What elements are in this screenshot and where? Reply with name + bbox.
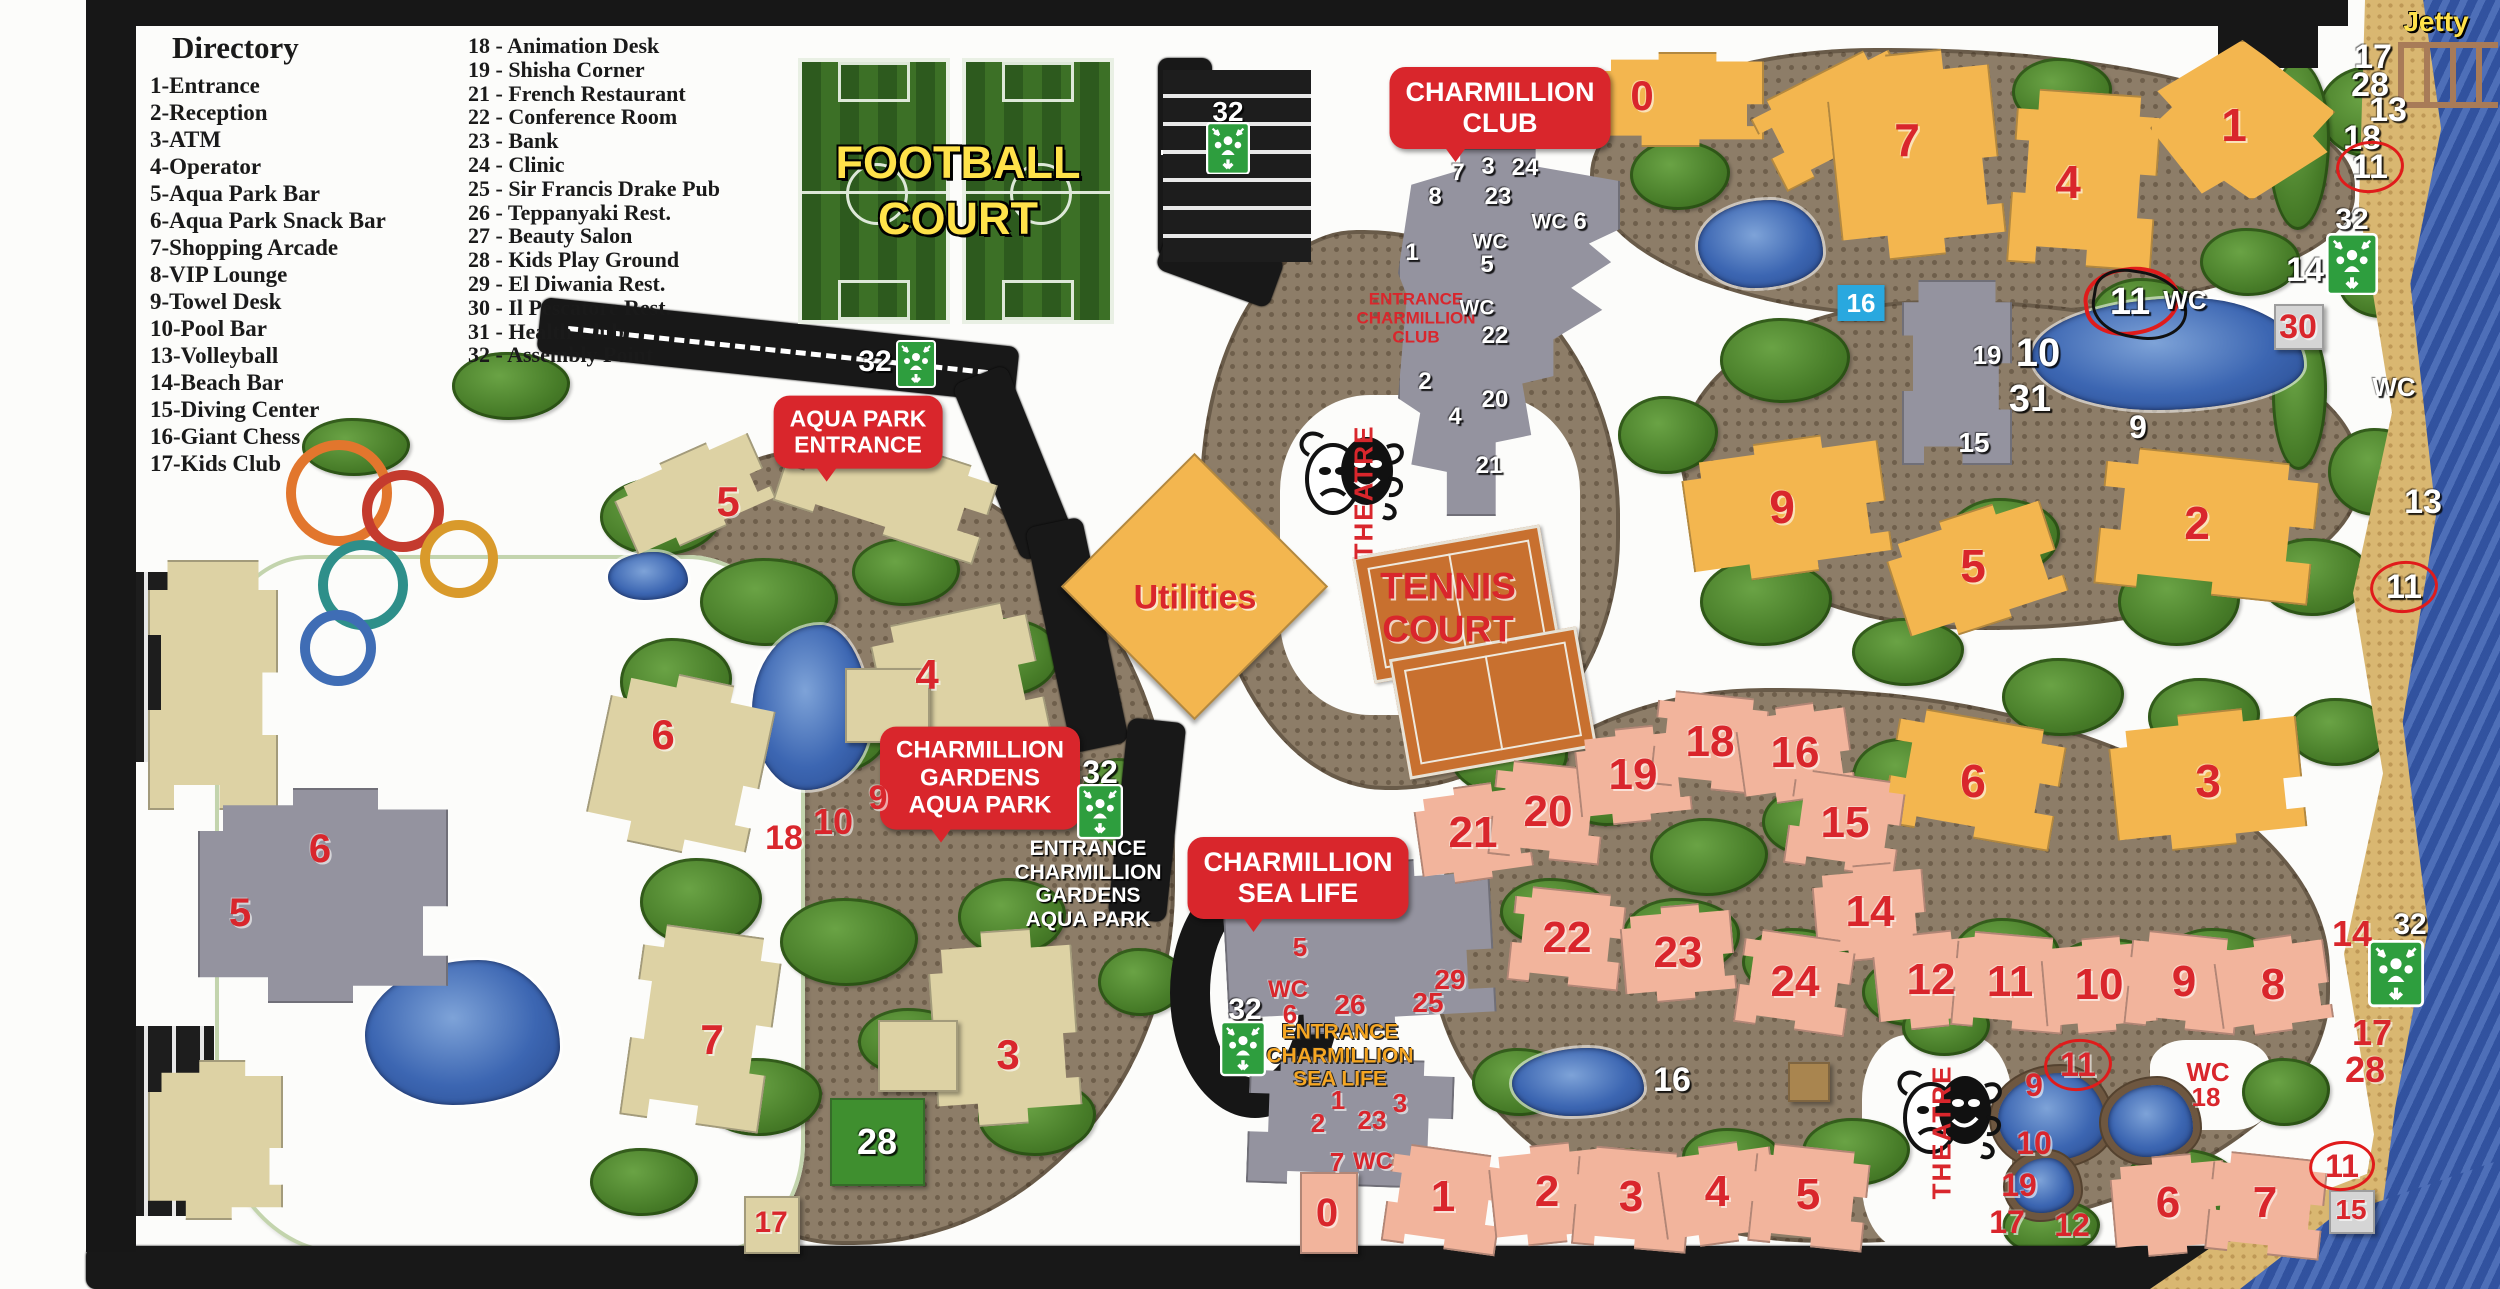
directory-item: 2-Reception: [150, 99, 468, 126]
wc-label: WC: [1353, 1150, 1393, 1174]
map-number-9: 9: [869, 781, 888, 815]
map-number-9: 9: [2172, 960, 2196, 1004]
jetty-label: Jetty: [2403, 6, 2468, 38]
utilities-label: Utilities: [1134, 579, 1257, 618]
directory-item: 8-VIP Lounge: [150, 261, 468, 288]
map-number-12: 12: [1907, 958, 1956, 1002]
map-number-1: 1: [1405, 241, 1418, 265]
map-number-6: 6: [1573, 210, 1586, 234]
map-number-15: 15: [2335, 1196, 2366, 1224]
map-number-19: 19: [1609, 753, 1658, 797]
map-number-18: 18: [1686, 720, 1735, 764]
map-number-5: 5: [229, 893, 251, 933]
map-number-3: 3: [1481, 155, 1494, 179]
map-number-4: 4: [2055, 159, 2081, 205]
building: [2006, 87, 2163, 272]
map-number-19: 19: [1973, 342, 2002, 368]
directory-item: 31 - Health Club: [468, 320, 830, 344]
football-court-label: FOOTBALL COURT: [836, 135, 1081, 248]
swimming-pool: [608, 552, 688, 600]
map-number-11: 11: [2110, 283, 2150, 321]
map-number-9: 9: [2129, 411, 2147, 443]
map-number-21: 21: [1449, 811, 1498, 855]
map-number-10: 10: [813, 804, 853, 840]
map-number-6: 6: [309, 829, 331, 869]
directory-item: 30 - Il Pescatore Rest.: [468, 296, 830, 320]
directory-item: 25 - Sir Francis Drake Pub: [468, 177, 830, 201]
penalty-box: [1002, 280, 1074, 320]
directory-item: 21 - French Restaurant: [468, 82, 830, 106]
directory-item: 16-Giant Chess: [150, 423, 468, 450]
map-number-16: 16: [1771, 731, 1820, 775]
directory-item: 17-Kids Club: [150, 450, 468, 477]
map-number-6: 6: [1960, 758, 1986, 804]
penalty-box: [838, 62, 910, 102]
map-number-2: 2: [1418, 370, 1431, 394]
map-number-17: 17: [754, 1208, 787, 1238]
map-number-4: 4: [1705, 1170, 1729, 1214]
directory-item: 7-Shopping Arcade: [150, 234, 468, 261]
map-number-0: 0: [1316, 1193, 1338, 1233]
badge-charmillion-club: CHARMILLION CLUB: [1390, 67, 1611, 149]
map-number-23: 23: [1358, 1107, 1387, 1133]
map-number-23: 23: [1485, 185, 1512, 209]
map-number-1: 1: [2221, 102, 2247, 148]
building: [1902, 280, 2012, 465]
assembly-point-icon: [2326, 233, 2378, 295]
directory-item: 29 - El Diwania Rest.: [468, 272, 830, 296]
directory-item: 28 - Kids Play Ground: [468, 248, 830, 272]
building: [1788, 1062, 1830, 1102]
map-number-8: 8: [2261, 963, 2285, 1007]
theatre-label: THEATRE: [1349, 425, 1380, 560]
directory-item: 9-Towel Desk: [150, 288, 468, 315]
map-number-11: 11: [2386, 570, 2422, 604]
map-border: [86, 0, 136, 1252]
directory-item: 27 - Beauty Salon: [468, 224, 830, 248]
map-border: [86, 0, 2348, 26]
map-number-1: 1: [1331, 1087, 1345, 1113]
map-number-6: 6: [2156, 1181, 2180, 1225]
map-number-11: 11: [1987, 960, 2034, 1004]
entrance-label-gardens: ENTRANCE CHARMILLION GARDENS AQUA PARK: [1015, 837, 1162, 931]
assembly-point-icon: [1220, 1021, 1266, 1076]
map-number-19: 19: [2001, 1169, 2037, 1201]
map-number-30: 30: [2279, 310, 2317, 344]
map-number-23: 23: [1654, 931, 1703, 975]
map-number-7: 7: [2253, 1181, 2277, 1225]
directory-item: 23 - Bank: [468, 129, 830, 153]
map-number-10: 10: [2075, 963, 2124, 1007]
assembly-point-icon: [896, 340, 936, 388]
directory-item: 13-Volleyball: [150, 342, 468, 369]
map-number-8: 8: [1428, 185, 1441, 209]
map-number-24: 24: [1771, 960, 1820, 1004]
directory-item: 18 - Animation Desk: [468, 34, 830, 58]
resort-map: Directory 1-Entrance2-Reception3-ATM4-Op…: [0, 0, 2500, 1289]
map-number-17: 17: [2352, 1015, 2392, 1051]
building: [1594, 52, 1764, 147]
garden-patch: [2200, 228, 2300, 296]
map-number-11: 11: [2325, 1150, 2359, 1182]
jetty-structure: [2398, 42, 2498, 108]
map-number-18: 18: [2192, 1084, 2221, 1110]
assembly-point-icon: [1206, 122, 1250, 175]
map-number-15: 15: [1821, 801, 1870, 845]
directory-columns: 1-Entrance2-Reception3-ATM4-Operator5-Aq…: [150, 72, 830, 477]
map-number-6: 6: [651, 714, 674, 756]
map-number-14: 14: [2332, 916, 2372, 952]
directory-item: 32 - Assembly Point: [468, 343, 830, 367]
building: [878, 1020, 958, 1092]
water-slide: [300, 610, 376, 686]
map-number-17: 17: [1989, 1206, 2025, 1238]
map-number-3: 3: [2195, 758, 2221, 804]
badge-charmillion-sea-life: CHARMILLION SEA LIFE: [1188, 837, 1409, 919]
map-number-32: 32: [2393, 910, 2426, 940]
swimming-pool: [2108, 1085, 2193, 1157]
map-number-15: 15: [1958, 429, 1989, 457]
map-number-14: 14: [2286, 253, 2324, 287]
swimming-pool: [1512, 1048, 1644, 1116]
map-number-3: 3: [1619, 1175, 1643, 1219]
map-number-5: 5: [1480, 253, 1493, 277]
directory-item: 26 - Teppanyaki Rest.: [468, 201, 830, 225]
directory-item: 5-Aqua Park Bar: [150, 180, 468, 207]
map-number-2: 2: [1311, 1110, 1325, 1136]
badge-charmillion-gardens-aqua-park: CHARMILLION GARDENS AQUA PARK: [880, 727, 1080, 830]
map-number-22: 22: [1543, 916, 1592, 960]
map-number-28: 28: [857, 1124, 897, 1160]
map-number-3: 3: [996, 1034, 1019, 1076]
directory-item: 22 - Conference Room: [468, 105, 830, 129]
map-number-0: 0: [1630, 75, 1653, 117]
map-number-5: 5: [1796, 1173, 1820, 1217]
map-number-24: 24: [1512, 156, 1539, 180]
map-number-7: 7: [1330, 1149, 1344, 1175]
map-number-12: 12: [2054, 1209, 2090, 1241]
map-number-13: 13: [2404, 485, 2442, 519]
map-number-10: 10: [2016, 333, 2061, 373]
map-number-28: 28: [2345, 1052, 2385, 1088]
map-number-20: 20: [1482, 388, 1509, 412]
map-number-7: 7: [1894, 117, 1920, 163]
wc-label: WC: [1532, 212, 1567, 233]
wc-label: WC: [2372, 374, 2415, 400]
map-number-22: 22: [1482, 324, 1509, 348]
directory-item: 1-Entrance: [150, 72, 468, 99]
map-number-25: 25: [1412, 989, 1443, 1017]
directory-item: 15-Diving Center: [150, 396, 468, 423]
map-number-4: 4: [915, 654, 938, 696]
map-number-11: 11: [2352, 150, 2388, 184]
map-number-6: 6: [1283, 1001, 1297, 1027]
map-number-5: 5: [716, 481, 739, 523]
directory-panel: Directory 1-Entrance2-Reception3-ATM4-Op…: [150, 26, 830, 477]
penalty-box: [838, 280, 910, 320]
directory-column-1: 1-Entrance2-Reception3-ATM4-Operator5-Aq…: [150, 72, 468, 477]
football-court: FOOTBALL COURT: [798, 54, 1118, 328]
assembly-point-icon: [1077, 784, 1123, 839]
map-number-18: 18: [765, 821, 803, 855]
map-number-9: 9: [2025, 1069, 2043, 1101]
badge-aqua-park-entrance: AQUA PARK ENTRANCE: [774, 396, 943, 469]
map-number-3: 3: [1393, 1090, 1407, 1116]
map-number-7: 7: [1451, 161, 1464, 185]
map-number-16: 16: [1653, 1063, 1691, 1097]
map-number-7: 7: [700, 1019, 723, 1061]
map-number-26: 26: [1334, 991, 1365, 1019]
theatre-label: THEATRE: [1927, 1065, 1958, 1200]
directory-item: 6-Aqua Park Snack Bar: [150, 207, 468, 234]
directory-item: 3-ATM: [150, 126, 468, 153]
map-number-16: 16: [1838, 285, 1885, 321]
map-number-1: 1: [1431, 1175, 1455, 1219]
directory-item: 14-Beach Bar: [150, 369, 468, 396]
entrance-label-sea-life: ENTRANCE CHARMILLION SEA LIFE: [1267, 1021, 1414, 1092]
garden-patch: [2242, 1058, 2330, 1126]
directory-item: 10-Pool Bar: [150, 315, 468, 342]
map-number-11: 11: [2060, 1048, 2096, 1082]
map-number-32: 32: [2335, 205, 2368, 235]
map-number-9: 9: [1769, 484, 1795, 530]
assembly-point-icon: [2368, 940, 2424, 1007]
map-number-21: 21: [1476, 454, 1503, 478]
building: [148, 1060, 283, 1220]
map-number-32: 32: [1082, 756, 1118, 788]
tennis-court-label: TENNIS COURT: [1380, 565, 1516, 650]
map-number-5: 5: [1960, 543, 1986, 589]
road: [86, 1246, 2308, 1289]
map-number-5: 5: [1293, 934, 1307, 960]
directory-item: 24 - Clinic: [468, 153, 830, 177]
map-number-14: 14: [1846, 890, 1895, 934]
map-number-31: 31: [2009, 380, 2051, 418]
directory-item: 4-Operator: [150, 153, 468, 180]
wc-label: WC: [2163, 287, 2206, 313]
map-number-32: 32: [858, 347, 891, 377]
map-number-4: 4: [1448, 405, 1461, 429]
penalty-box: [1002, 62, 1074, 102]
map-number-2: 2: [1535, 1170, 1559, 1214]
building: [148, 560, 278, 810]
wc-label: WC: [1473, 232, 1508, 253]
garden-patch: [2002, 658, 2124, 736]
water-slide: [420, 520, 498, 598]
wc-label: WC: [1460, 298, 1495, 319]
map-number-10: 10: [2016, 1127, 2052, 1159]
map-number-2: 2: [2184, 500, 2210, 546]
entrance-label-club: ENTRANCE CHARMILLION CLUB: [1357, 289, 1476, 346]
directory-item: 19 - Shisha Corner: [468, 58, 830, 82]
map-number-20: 20: [1524, 790, 1573, 834]
